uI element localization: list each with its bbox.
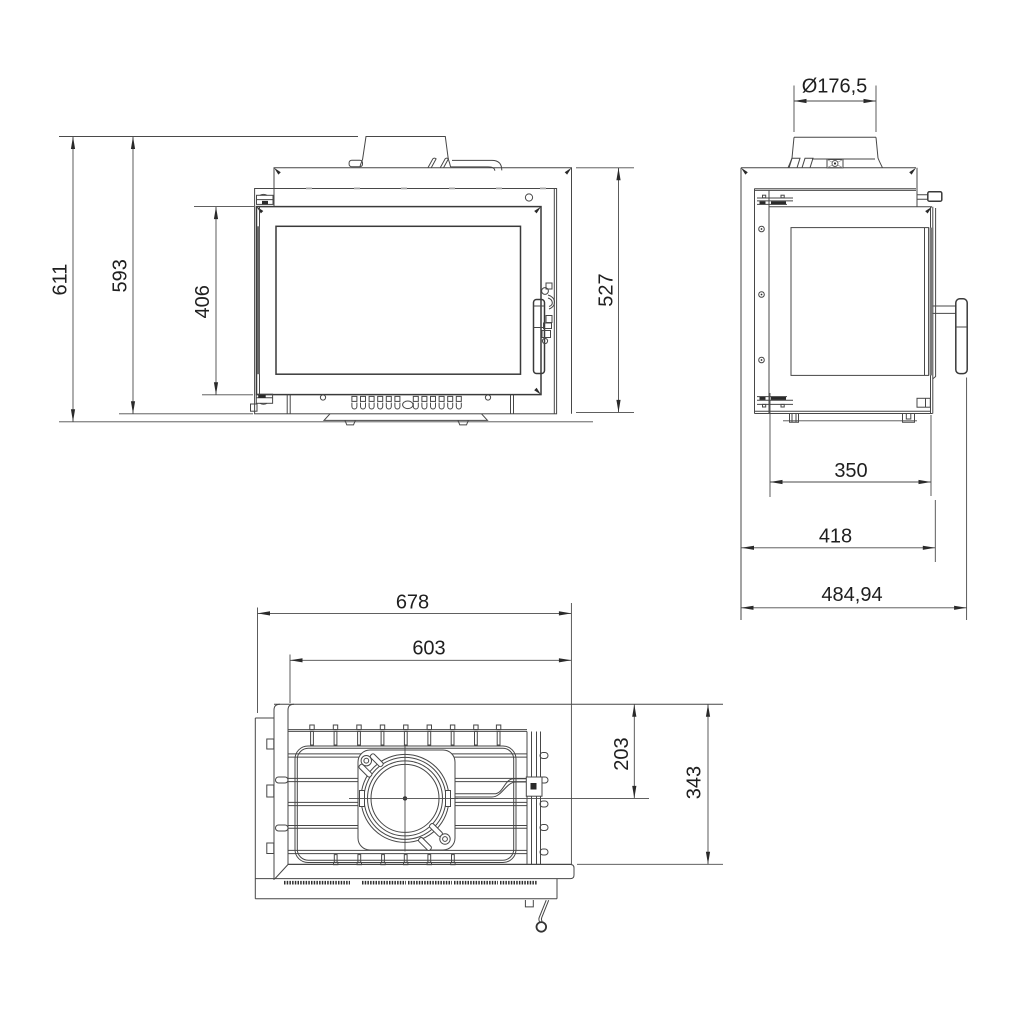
svg-text:Ø176,5: Ø176,5 xyxy=(802,76,868,98)
svg-text:406: 406 xyxy=(192,285,214,318)
svg-text:593: 593 xyxy=(110,259,132,292)
svg-text:418: 418 xyxy=(819,526,852,548)
svg-text:603: 603 xyxy=(412,638,445,660)
svg-text:484,94: 484,94 xyxy=(821,584,882,606)
svg-text:343: 343 xyxy=(684,766,706,799)
svg-text:203: 203 xyxy=(611,737,633,770)
svg-text:350: 350 xyxy=(834,460,867,482)
svg-text:527: 527 xyxy=(596,273,618,306)
svg-text:611: 611 xyxy=(50,264,72,296)
svg-text:678: 678 xyxy=(396,592,429,614)
